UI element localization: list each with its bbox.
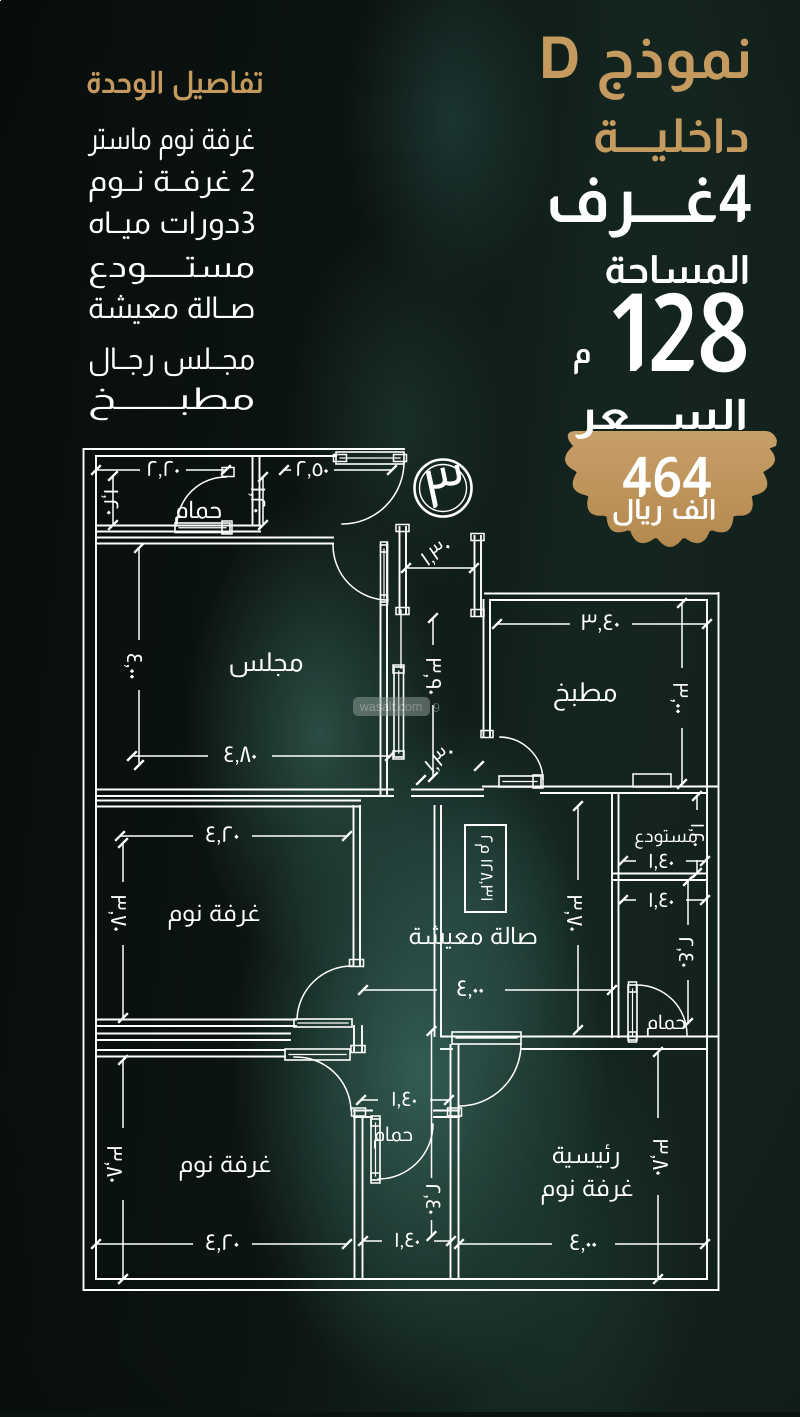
- svg-text:wasalt.com: wasalt.com: [359, 700, 423, 714]
- svg-text:9: 9: [433, 701, 440, 715]
